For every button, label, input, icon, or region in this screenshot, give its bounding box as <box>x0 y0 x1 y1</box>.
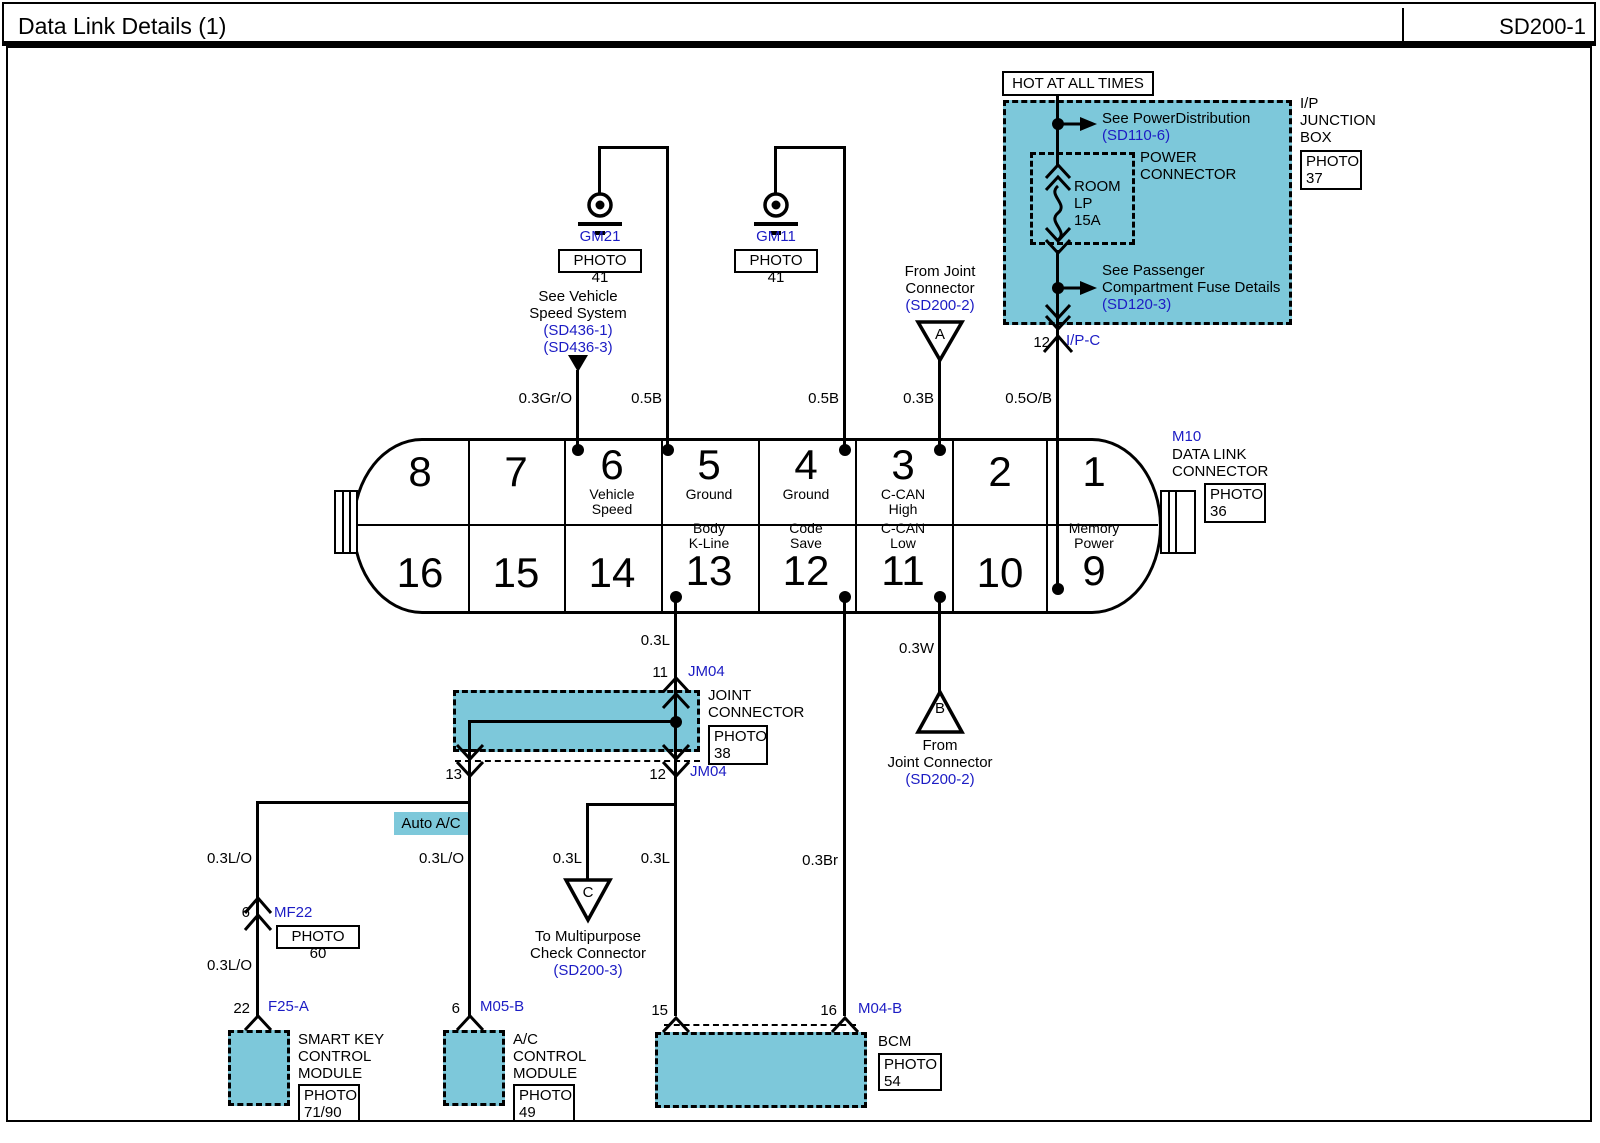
hot-label: HOT AT ALL TIMES <box>1012 75 1144 92</box>
wire-label-pin5: 0.5B <box>594 390 662 407</box>
wire-label-pin9: 0.5O/B <box>984 390 1052 407</box>
wire-gm11-horizontal <box>774 146 846 149</box>
wire-label-pin4: 0.5B <box>769 390 839 407</box>
photo-36-box: PHOTO 36 <box>1204 483 1266 523</box>
dlc-left-tab <box>334 490 358 554</box>
wire-fuse-feed <box>1056 94 1059 166</box>
ip-box-label3: BOX <box>1300 129 1332 146</box>
wire-pin11-triangle-b <box>938 598 941 692</box>
wire-label-mid: 0.3L/O <box>392 850 464 867</box>
dlc-pin-16: 16 <box>372 551 468 595</box>
triangle-b-letter: B <box>928 700 952 717</box>
triangle-b-text1: From <box>870 737 1010 754</box>
wire-gm11-pin4 <box>843 146 846 450</box>
dlc-right-tab <box>1160 490 1196 554</box>
wire-triangle-c-drop <box>586 803 589 880</box>
triangle-b-text2: Joint Connector <box>870 754 1010 771</box>
speed-ref-line2: Speed System <box>518 305 638 322</box>
m05b-pin-number: 6 <box>432 1000 460 1017</box>
dlc-left-tab-line <box>342 492 344 552</box>
jm04-name-bottom: JM04 <box>690 763 727 780</box>
ipc-connector-name: I/P-C <box>1066 332 1100 349</box>
dlc-left-tab-line2 <box>349 492 351 552</box>
wire-branch-left <box>256 801 471 804</box>
photo-38-box: PHOTO 38 <box>708 725 768 765</box>
jm04-pin13-number: 13 <box>414 766 462 783</box>
wire-gm21-pin5 <box>666 146 669 450</box>
dlc-pin-10: 10 <box>952 551 1048 595</box>
bcm-module-box <box>655 1032 867 1108</box>
photo-71-90-num: 71/90 <box>304 1104 354 1121</box>
photo-37-label: PHOTO <box>1306 153 1356 170</box>
ip-box-label2: JUNCTION <box>1300 112 1376 129</box>
triangle-a-letter: A <box>928 326 952 343</box>
triangle-c-ref[interactable]: (SD200-3) <box>515 962 661 979</box>
bcm-pin16-number: 16 <box>799 1002 837 1019</box>
dlc-pin-14: 14 <box>564 551 660 595</box>
power-distribution-text: See PowerDistribution <box>1102 110 1250 127</box>
dlc-connector-id: M10 <box>1172 428 1201 445</box>
wire-jm04-internal <box>468 720 677 723</box>
dlc-desc1: DATA LINK <box>1172 446 1246 463</box>
triangle-c-letter: C <box>576 884 600 901</box>
dlc-pin-3-label: C-CAN <box>855 487 951 502</box>
wire-label-left-lower: 0.3L/O <box>182 957 252 974</box>
wire-label-c-branch: 0.3L <box>512 850 582 867</box>
triangle-c-text1: To Multipurpose <box>515 928 661 945</box>
dlc-pin-4: 4 <box>758 443 854 487</box>
bcm-boundary-dashed-line <box>664 1024 856 1026</box>
dlc-right-tab-line <box>1168 492 1170 552</box>
passenger-fuse-text1: See Passenger <box>1102 262 1205 279</box>
wire-gm11-riser <box>774 148 777 194</box>
f25a-connector-name: F25-A <box>268 998 309 1015</box>
ac-module-name1: A/C <box>513 1031 538 1048</box>
hot-at-all-times-box: HOT AT ALL TIMES <box>1002 71 1154 96</box>
power-distribution-ref[interactable]: (SD110-6) <box>1102 127 1170 144</box>
dlc-pin-4-label: Ground <box>758 487 854 502</box>
wire-smart-key-drop <box>256 801 259 1016</box>
photo-71-90-label: PHOTO <box>304 1087 354 1104</box>
triangle-a-text1: From Joint <box>890 263 990 280</box>
wire-label-bcm16: 0.3Br <box>766 852 838 869</box>
page-title: Data Link Details (1) <box>18 13 226 40</box>
dlc-pin-12-label2: Save <box>758 536 854 551</box>
photo-49-num: 49 <box>519 1104 569 1121</box>
wire-pin13-jm04 <box>674 592 677 752</box>
gm11-label: GM11 <box>734 228 818 245</box>
smart-key-name2: CONTROL <box>298 1048 371 1065</box>
dlc-pin-5-label: Ground <box>661 487 757 502</box>
dlc-right-tab-line2 <box>1175 492 1177 552</box>
wire-ipc-pin9 <box>1056 250 1059 590</box>
wire-pin12-bcm16 <box>843 598 846 1016</box>
ac-module-name2: CONTROL <box>513 1048 586 1065</box>
dlc-pin-11: 11 <box>855 549 951 593</box>
dlc-pin-11-label2: Low <box>855 536 951 551</box>
fuse-rating: 15A <box>1074 212 1101 229</box>
photo-54-label: PHOTO <box>884 1056 936 1073</box>
wire-label-pin13: 0.3L <box>600 632 670 649</box>
ip-box-label1: I/P <box>1300 95 1318 112</box>
wire-gm21-horizontal <box>598 146 669 149</box>
photo-38-label: PHOTO <box>714 728 762 745</box>
title-bar: Data Link Details (1) SD200-1 <box>2 2 1596 46</box>
gm21-label: GM21 <box>558 228 642 245</box>
wire-label-bcm15: 0.3L <box>598 850 670 867</box>
auto-ac-tag: Auto A/C <box>394 812 468 835</box>
dlc-pin-6-label: Vehicle <box>564 487 660 502</box>
wire-jm04-13-ac-module <box>468 720 471 1016</box>
dlc-pin-3: 3 <box>855 443 951 487</box>
wire-branch-c <box>586 803 677 806</box>
dlc-pin-6-label2: Speed <box>564 502 660 517</box>
ac-module-name3: MODULE <box>513 1065 577 1082</box>
photo-54-box: PHOTO 54 <box>878 1053 942 1091</box>
triangle-c-text2: Check Connector <box>515 945 661 962</box>
photo-54-num: 54 <box>884 1073 936 1090</box>
ac-module-box <box>443 1030 505 1106</box>
smart-key-module-box <box>228 1030 290 1106</box>
wire-vehicle-speed-pin6 <box>576 370 579 450</box>
smart-key-name3: MODULE <box>298 1065 362 1082</box>
dlc-pin-9-label: Memory <box>1046 521 1142 536</box>
triangle-b-ref[interactable]: (SD200-2) <box>870 771 1010 788</box>
fuse-name-line2: LP <box>1074 195 1092 212</box>
wire-label-pin11: 0.3W <box>862 640 934 657</box>
jm04-desc2: CONNECTOR <box>708 704 804 721</box>
speed-ref-sd436-3[interactable]: (SD436-3) <box>518 339 638 356</box>
jm04-desc1: JOINT <box>708 687 751 704</box>
passenger-fuse-text2: Compartment Fuse Details <box>1102 279 1280 296</box>
dlc-pin-12-label: Code <box>758 521 854 536</box>
title-bar-divider <box>1402 8 1404 48</box>
wiring-diagram-page: Data Link Details (1) SD200-1 HOT AT ALL… <box>0 0 1600 1143</box>
dlc-pin-13-label: Body <box>661 521 757 536</box>
wire-triangle-a-pin3 <box>938 358 941 450</box>
photo-60-box: PHOTO 60 <box>276 925 360 949</box>
photo-36-num: 36 <box>1210 503 1260 520</box>
wire-label-pin6: 0.3Gr/O <box>500 390 572 407</box>
m04b-connector-name: M04-B <box>858 1000 902 1017</box>
photo-37-box: PHOTO 37 <box>1300 150 1362 190</box>
dlc-pin-5: 5 <box>661 443 757 487</box>
photo-38-num: 38 <box>714 745 762 762</box>
dlc-pin-11-label: C-CAN <box>855 521 951 536</box>
photo-41-box-gm21: PHOTO 41 <box>558 249 642 273</box>
dlc-pin-12: 12 <box>758 549 854 593</box>
jm04-pin12-number: 12 <box>618 766 666 783</box>
bcm-pin15-number: 15 <box>630 1002 668 1019</box>
speed-ref-line1: See Vehicle <box>518 288 638 305</box>
m05b-connector-name: M05-B <box>480 998 524 1015</box>
passenger-fuse-ref[interactable]: (SD120-3) <box>1102 296 1171 313</box>
power-connector-label1: POWER <box>1140 149 1197 166</box>
photo-37-num: 37 <box>1306 170 1356 187</box>
wire-label-left-upper: 0.3L/O <box>182 850 252 867</box>
photo-41-box-gm11: PHOTO 41 <box>734 249 818 273</box>
triangle-a-ref[interactable]: (SD200-2) <box>890 297 990 314</box>
f25a-pin-number: 22 <box>212 1000 250 1017</box>
speed-ref-sd436-1[interactable]: (SD436-1) <box>518 322 638 339</box>
dlc-pin-8: 8 <box>372 450 468 494</box>
dlc-pin-7: 7 <box>468 450 564 494</box>
dlc-pin-2: 2 <box>952 450 1048 494</box>
jm04-pin11-number: 11 <box>620 664 668 681</box>
dlc-pin-9-label2: Power <box>1046 536 1142 551</box>
dlc-pin-1: 1 <box>1046 450 1142 494</box>
dlc-desc2: CONNECTOR <box>1172 463 1268 480</box>
dlc-pin-3-label2: High <box>855 502 951 517</box>
dlc-pin-9: 9 <box>1046 549 1142 593</box>
dlc-pin-15: 15 <box>468 551 564 595</box>
page-code: SD200-1 <box>1412 14 1586 40</box>
power-connector-label2: CONNECTOR <box>1140 166 1236 183</box>
wire-label-pin3: 0.3B <box>864 390 934 407</box>
photo-71-90-box: PHOTO 71/90 <box>298 1084 360 1122</box>
wire-gm21-riser <box>598 148 601 194</box>
dlc-pin-13: 13 <box>661 549 757 593</box>
ipc-pin-number: 12 <box>1002 334 1050 351</box>
smart-key-name1: SMART KEY <box>298 1031 384 1048</box>
fuse-name-line1: ROOM <box>1074 178 1121 195</box>
photo-49-label: PHOTO <box>519 1087 569 1104</box>
bcm-name: BCM <box>878 1033 911 1050</box>
triangle-a-text2: Connector <box>890 280 990 297</box>
photo-36-label: PHOTO <box>1210 486 1260 503</box>
wire-jm04-12-bcm15 <box>674 752 677 1016</box>
jm04-name-top: JM04 <box>688 663 725 680</box>
dlc-row-divider <box>356 524 1158 526</box>
mf22-name: MF22 <box>274 904 312 921</box>
dlc-pin-13-label2: K-Line <box>661 536 757 551</box>
jm04-boundary-dashed-line <box>455 760 700 762</box>
mf22-pin-number: 6 <box>222 904 250 921</box>
photo-49-box: PHOTO 49 <box>513 1084 575 1122</box>
